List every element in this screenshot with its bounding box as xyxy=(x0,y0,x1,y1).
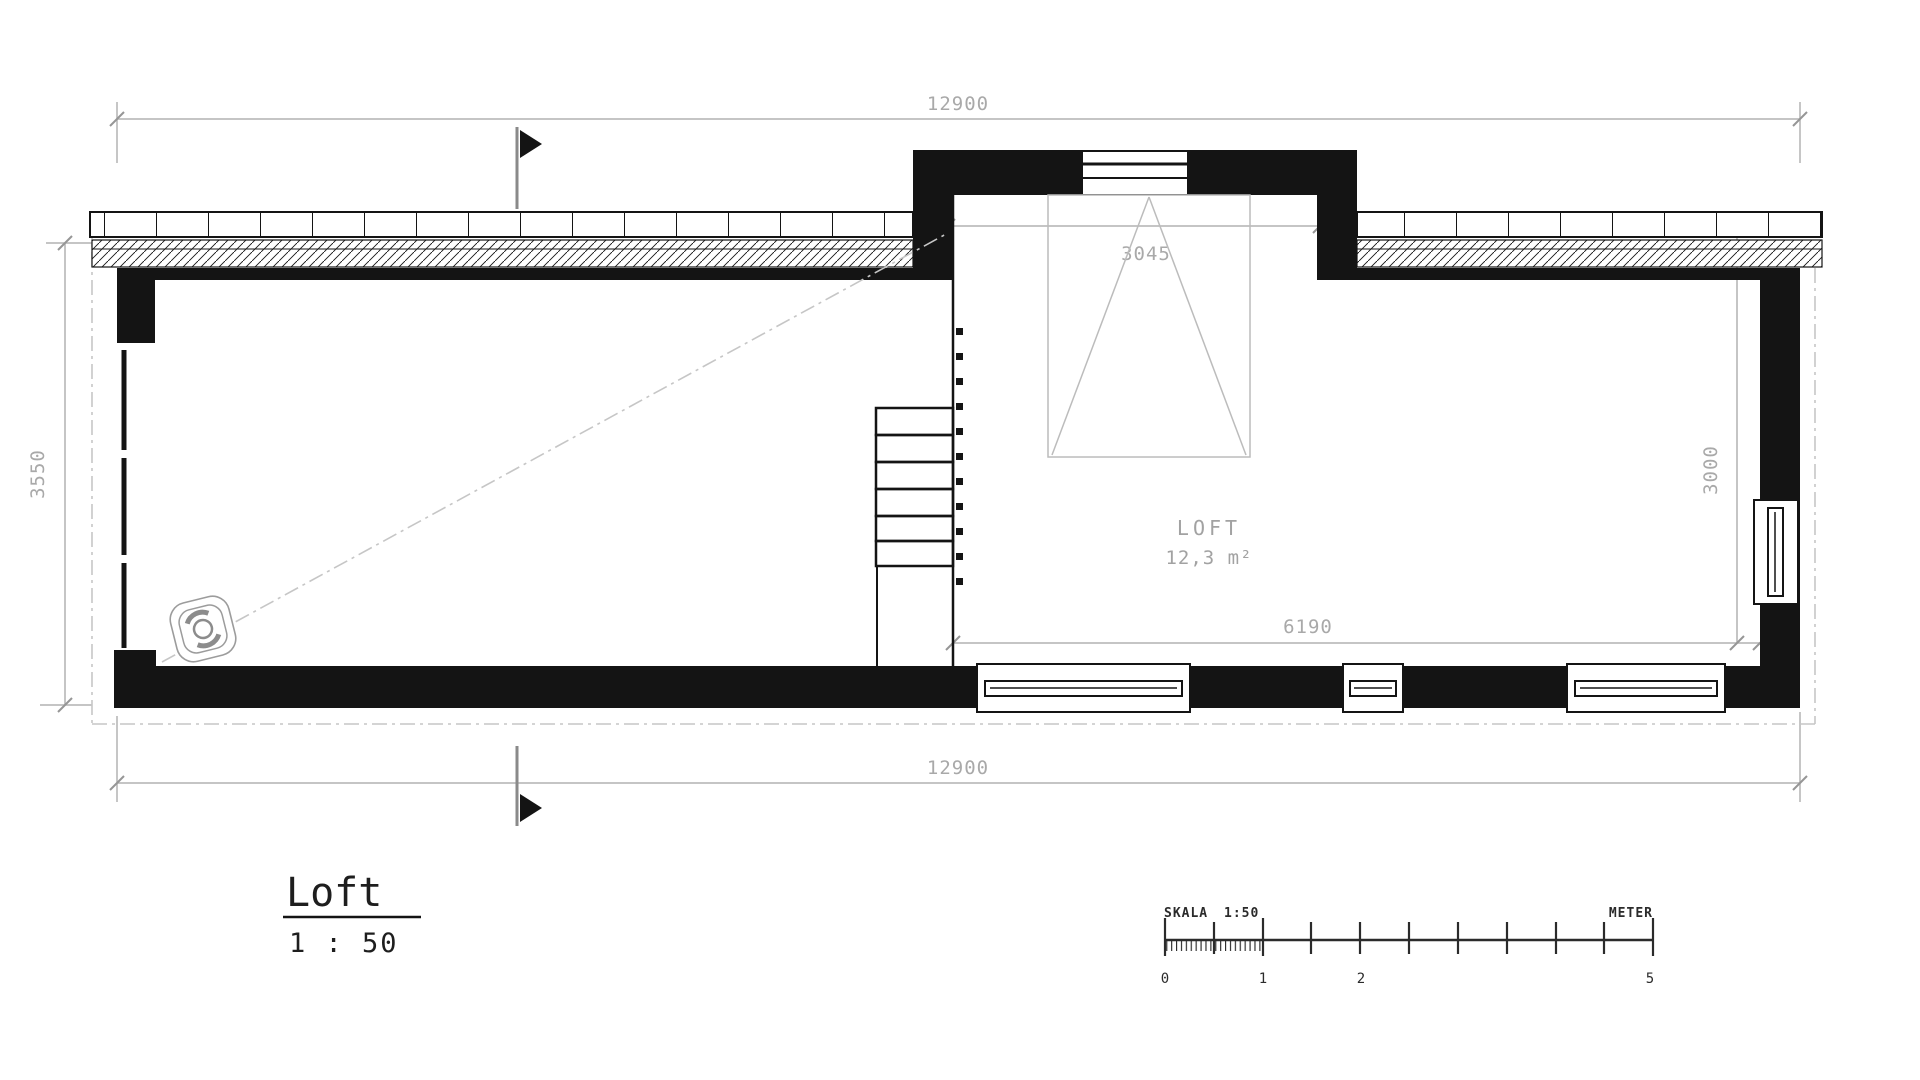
dormer-window xyxy=(1083,152,1187,194)
hatch-band-right xyxy=(1357,240,1822,267)
bottom-windows xyxy=(977,664,1725,712)
railing-strip-left xyxy=(90,212,913,237)
scalebar-num-5: 5 xyxy=(1646,971,1654,987)
bottom-left-pier xyxy=(114,650,156,708)
deck-railing xyxy=(90,212,1822,267)
dormer-left-wall xyxy=(913,150,953,280)
dimension-left-label: 3550 xyxy=(27,449,49,499)
stair-tread xyxy=(876,489,953,516)
stair-tread xyxy=(876,408,953,435)
stove xyxy=(167,593,240,666)
room-label: LOFT 12,3 m² xyxy=(1165,516,1252,569)
scalebar-num-2: 2 xyxy=(1357,971,1365,987)
scalebar-num-1: 1 xyxy=(1259,971,1267,987)
dimension-top-label: 12900 xyxy=(927,93,989,115)
drawing-scale: 1 : 50 xyxy=(289,928,399,959)
scale-bar: SKALA 1:50 METER 0 1 2 5 xyxy=(1161,906,1654,987)
stair-tread xyxy=(876,462,953,489)
window-2 xyxy=(1343,664,1403,712)
title-block: Loft 1 : 50 xyxy=(283,870,421,959)
skylight-opening-line xyxy=(1149,197,1246,455)
dormer-right-wall xyxy=(1317,150,1357,280)
scalebar-ratio-label: 1:50 xyxy=(1224,906,1259,921)
railing-strip-right xyxy=(1357,212,1822,237)
dimension-right-label: 3000 xyxy=(1700,445,1722,495)
top-plate-left xyxy=(117,268,913,280)
scalebar-skala-label: SKALA xyxy=(1164,906,1208,921)
floor-plan-canvas: 12900 12900 3550 3045 6190 3000 xyxy=(0,0,1920,1080)
section-marker-bottom xyxy=(517,746,542,826)
room-area-label: 12,3 m² xyxy=(1165,547,1252,569)
stair-tread xyxy=(876,435,953,462)
dimension-loft-width-label: 6190 xyxy=(1283,616,1333,638)
window-1 xyxy=(977,664,1190,712)
right-wall-window xyxy=(1754,500,1798,604)
skylight xyxy=(1048,195,1250,457)
dimension-bottom-label: 12900 xyxy=(927,757,989,779)
right-wall xyxy=(1760,268,1800,708)
stair-tread xyxy=(876,516,953,541)
top-plate-right xyxy=(1357,268,1800,280)
stair-tread xyxy=(876,541,953,566)
headroom-dash-line xyxy=(162,233,948,662)
stairs xyxy=(876,408,953,666)
window-3 xyxy=(1567,664,1725,712)
scalebar-meter-label: METER xyxy=(1609,906,1653,921)
dimension-dormer-label: 3045 xyxy=(1121,243,1171,265)
hatch-band-left xyxy=(92,240,913,267)
window-opening xyxy=(1083,152,1187,194)
section-arrow-icon xyxy=(520,130,542,158)
top-left-pier xyxy=(117,268,155,343)
loft-railing-posts xyxy=(956,328,963,585)
skylight-opening-line xyxy=(1052,197,1149,455)
scalebar-num-0: 0 xyxy=(1161,971,1169,987)
section-arrow-icon xyxy=(520,794,542,822)
room-name-label: LOFT xyxy=(1177,516,1241,540)
section-marker-top xyxy=(517,127,542,209)
loft-edge xyxy=(953,195,963,666)
skylight-outline xyxy=(1048,195,1250,457)
drawing-title: Loft xyxy=(286,870,382,916)
